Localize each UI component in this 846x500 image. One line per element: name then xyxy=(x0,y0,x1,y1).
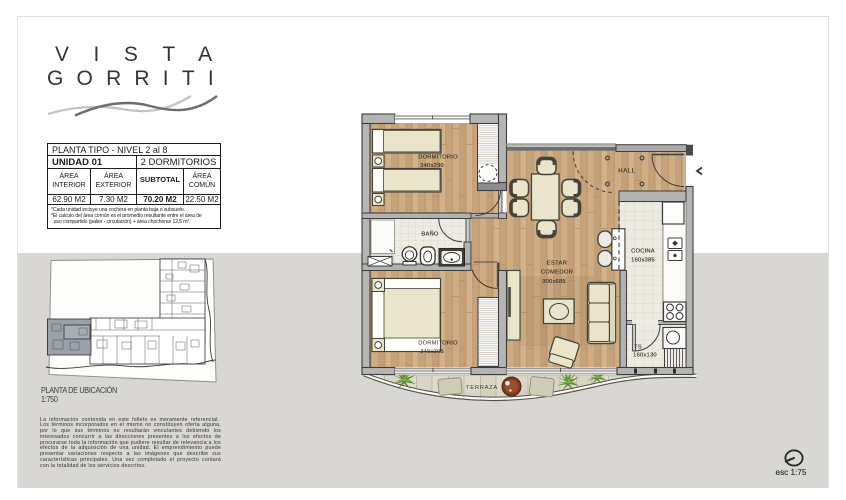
svg-text:BAÑO: BAÑO xyxy=(421,231,439,238)
svg-text:ESTAR: ESTAR xyxy=(547,261,567,267)
svg-text:340x305: 340x305 xyxy=(420,349,444,355)
svg-text:TERRAZA: TERRAZA xyxy=(466,385,498,391)
svg-text:300x685: 300x685 xyxy=(542,279,566,285)
svg-text:HALL: HALL xyxy=(618,169,635,175)
svg-text:340x290: 340x290 xyxy=(420,163,444,169)
svg-text:esc 1:75: esc 1:75 xyxy=(776,468,807,477)
svg-text:DORMITORIO: DORMITORIO xyxy=(418,155,458,161)
svg-text:COCINA: COCINA xyxy=(631,249,655,255)
svg-text:160x130: 160x130 xyxy=(633,353,657,359)
svg-text:TS: TS xyxy=(634,345,642,351)
svg-text:DORMITORIO: DORMITORIO xyxy=(418,341,458,347)
svg-text:COMEDOR: COMEDOR xyxy=(541,270,573,276)
svg-text:160x385: 160x385 xyxy=(631,258,655,264)
